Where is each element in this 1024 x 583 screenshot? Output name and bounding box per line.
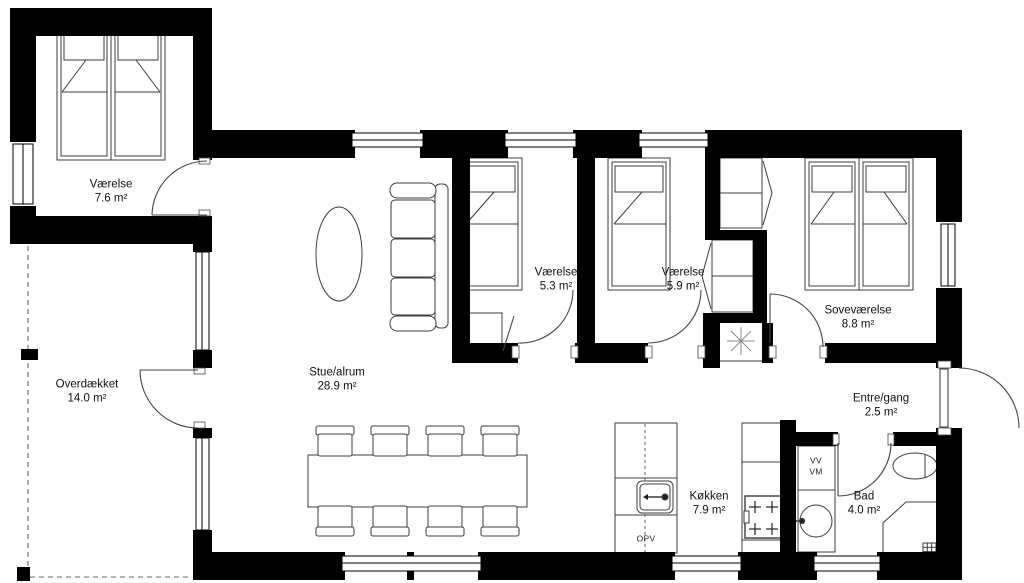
- room-area: 5.3 m²: [535, 280, 578, 294]
- window-west-stue-upper: [196, 252, 209, 350]
- room-label-bad: Bad 4.0 m²: [848, 490, 881, 519]
- door-vaerelse-2: [503, 290, 578, 358]
- terrace-boundary: [17, 246, 192, 581]
- room-label-koekken: Køkken 7.9 m²: [690, 490, 729, 519]
- room-name: Entre/gang: [853, 392, 909, 406]
- room-name: Overdækket: [56, 378, 119, 392]
- window-east-sovevaerelse: [941, 224, 955, 286]
- room-area: 14.0 m²: [56, 392, 119, 406]
- tech-cabinet-star: [720, 327, 762, 361]
- room-name: Bad: [848, 490, 881, 504]
- wardrobe-sovevaerelse: [720, 158, 772, 228]
- window-north-vaerelse-2: [505, 133, 576, 147]
- door-bad: [833, 434, 894, 496]
- window-nw-room: [13, 144, 33, 204]
- room-label-stue: Stue/alrum 28.9 m²: [309, 366, 365, 395]
- door-entrance: [938, 361, 1019, 435]
- floor-plan: Værelse 7.6 m² Stue/alrum 28.9 m² Værels…: [0, 0, 1024, 583]
- double-bed-sovevaerelse: [805, 158, 913, 290]
- room-name: Værelse: [90, 178, 133, 192]
- room-area: 2.5 m²: [853, 406, 909, 420]
- room-area: 5.9 m²: [662, 280, 705, 294]
- room-area: 7.6 m²: [90, 192, 133, 206]
- wardrobe-vaerelse-3: [702, 240, 753, 312]
- room-area: 4.0 m²: [848, 504, 881, 518]
- room-area: 8.8 m²: [824, 318, 891, 332]
- window-west-stue-lower: [196, 438, 209, 530]
- door-terrace: [140, 368, 205, 428]
- sofa: [390, 183, 448, 331]
- double-bed-vaerelse-1: [57, 26, 165, 160]
- window-south-koekken: [672, 556, 741, 571]
- window-south-dining: [342, 556, 481, 571]
- dishwasher-label: OPV: [637, 534, 656, 545]
- room-label-vaerelse-1: Værelse 7.6 m²: [90, 178, 133, 207]
- room-area: 7.9 m²: [690, 504, 729, 518]
- kitchen-counter-stove: [742, 423, 782, 553]
- water-heater-label: VV: [810, 456, 822, 467]
- toilet: [893, 453, 937, 479]
- room-name: Værelse: [535, 266, 578, 280]
- window-south-bad: [814, 556, 880, 571]
- coffee-table: [316, 207, 362, 301]
- door-vaerelse-1: [152, 158, 210, 216]
- door-vaerelse-3: [645, 290, 705, 358]
- washing-machine-label: VM: [809, 467, 822, 478]
- room-label-overdaekket: Overdækket 14.0 m²: [56, 378, 119, 407]
- room-area: 28.9 m²: [309, 380, 365, 394]
- window-north-stue: [352, 133, 423, 147]
- room-name: Køkken: [690, 490, 729, 504]
- room-name: Soveværelse: [824, 304, 891, 318]
- room-label-vaerelse-3: Værelse 5.9 m²: [662, 266, 705, 295]
- dining-table: [308, 455, 527, 507]
- room-name: Værelse: [662, 266, 705, 280]
- room-name: Stue/alrum: [309, 366, 365, 380]
- door-sovevaerelse: [769, 294, 827, 358]
- window-north-vaerelse-3: [639, 133, 708, 147]
- room-label-vaerelse-2: Værelse 5.3 m²: [535, 266, 578, 295]
- room-label-sovevaerelse: Soveværelse 8.8 m²: [824, 304, 891, 333]
- room-label-entre: Entre/gang 2.5 m²: [853, 392, 909, 421]
